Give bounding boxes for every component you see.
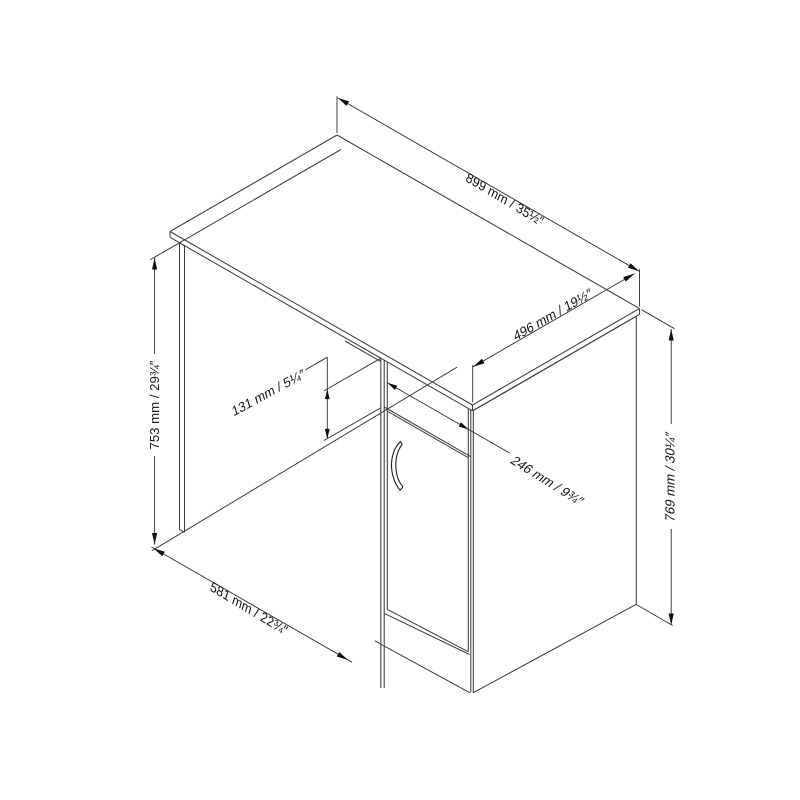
svg-text:581 mm / 22¾″: 581 mm / 22¾″	[208, 578, 289, 639]
svg-text:246 mm / 9¾″: 246 mm / 9¾″	[507, 454, 587, 508]
svg-text:753 mm / 29¾″: 753 mm / 29¾″	[147, 360, 162, 449]
svg-text:131 mm / 5¼″: 131 mm / 5¼″	[230, 366, 306, 420]
svg-text:496 mm / 19½″: 496 mm / 19½″	[512, 285, 594, 344]
svg-text:899 mm / 35½″: 899 mm / 35½″	[464, 169, 546, 229]
svg-text:769 mm / 30¼″: 769 mm / 30¼″	[663, 430, 678, 523]
